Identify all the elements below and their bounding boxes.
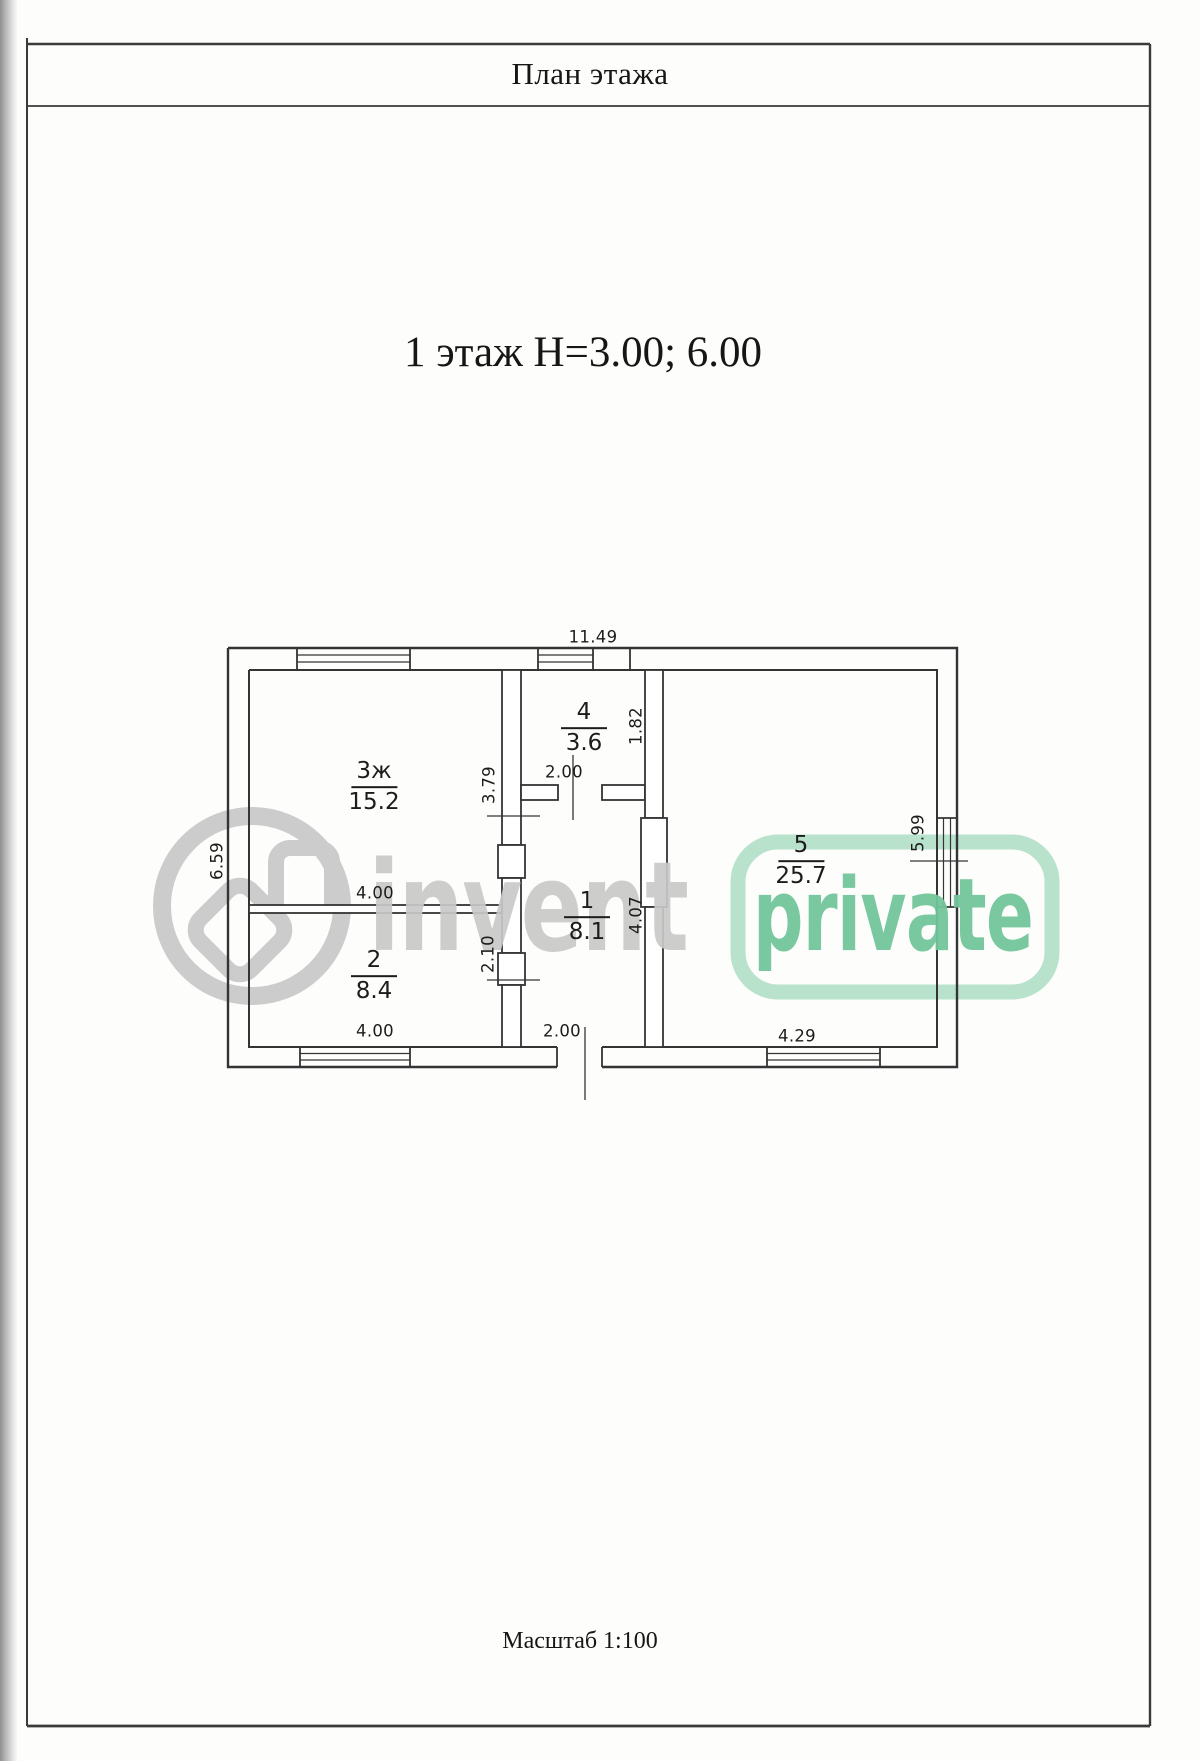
window-top-room4 (538, 655, 593, 662)
dim-room2-bottom: 4.00 (356, 1022, 394, 1041)
room-area: 25.7 (775, 864, 826, 889)
room-area: 8.4 (351, 979, 397, 1004)
window-bottom-room5 (767, 1054, 880, 1061)
room-number: 3ж (348, 759, 399, 784)
scale-note: Масштаб 1:100 (502, 1628, 657, 1655)
dim-room4-bottom: 2.00 (545, 763, 583, 782)
room-area: 3.6 (561, 731, 607, 756)
dim-room3-right: 3.79 (480, 766, 499, 804)
floor-heading: 1 этаж Н=3.00; 6.00 (404, 328, 762, 377)
window-bottom-room2 (300, 1054, 410, 1061)
room-area: 15.2 (348, 790, 399, 815)
room-number: 1 (564, 889, 610, 914)
fraction-bar (351, 975, 397, 977)
fraction-bar (778, 860, 824, 862)
room-label-5: 5 25.7 (775, 833, 826, 889)
dim-room4-right: 1.82 (627, 707, 646, 745)
scanned-floor-plan-page: invent private План этажа 1 этаж Н=3.00;… (0, 0, 1200, 1761)
room-number: 5 (775, 833, 826, 858)
room-label-2: 2 8.4 (351, 948, 397, 1004)
room-area: 8.1 (564, 920, 610, 945)
room-number: 4 (561, 700, 607, 725)
fraction-bar (564, 916, 610, 918)
dim-hall-right: 4.07 (627, 896, 646, 934)
dim-room5-bottom: 4.29 (778, 1027, 816, 1046)
room-label-3zh: 3ж 15.2 (348, 759, 399, 815)
dim-room5-right: 5.99 (909, 814, 928, 852)
window-top-room3 (297, 655, 410, 662)
fraction-bar (351, 786, 397, 788)
fraction-bar (561, 727, 607, 729)
dim-overall-top: 11.49 (569, 628, 618, 647)
dim-hall-left: 2.10 (479, 935, 498, 973)
dim-room3-bottom: 4.00 (356, 884, 394, 903)
dim-entry-bottom: 2.00 (543, 1022, 581, 1041)
room-number: 2 (351, 948, 397, 973)
page-title: План этажа (511, 56, 668, 92)
dim-overall-left: 6.59 (208, 842, 227, 880)
room-label-1: 1 8.1 (564, 889, 610, 945)
room-label-4: 4 3.6 (561, 700, 607, 756)
